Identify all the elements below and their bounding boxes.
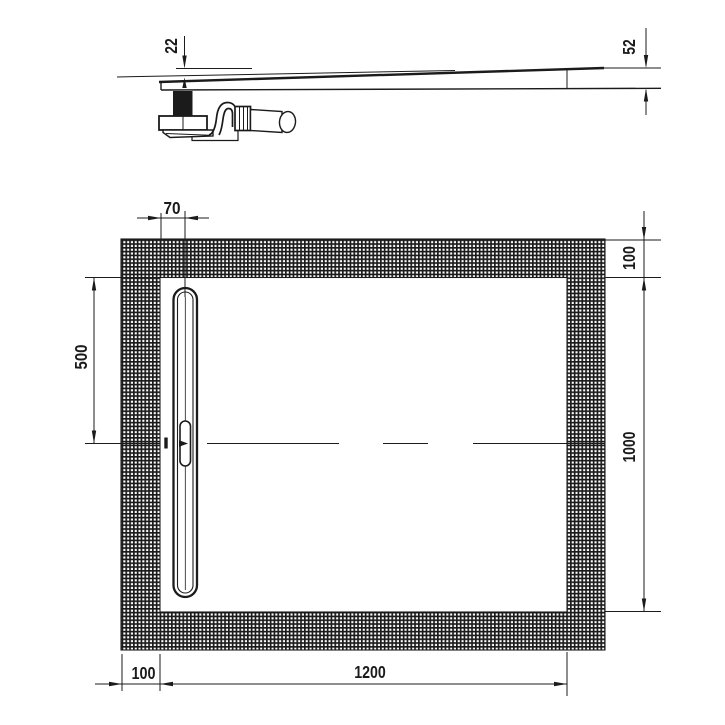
technical-drawing-svg: 22 52 — [0, 0, 725, 725]
centerline-bold-tick — [164, 438, 167, 449]
arrowhead-down — [92, 431, 96, 444]
plan-view: 70 100 1000 500 — [71, 198, 661, 696]
dim-label-22: 22 — [161, 38, 181, 54]
arrowhead-down — [642, 227, 646, 240]
dim-label-1200: 1200 — [354, 662, 386, 682]
trap-pipe-inner-curve — [219, 109, 233, 136]
drain-trap-assembly — [159, 91, 297, 141]
drain-tailpiece — [173, 91, 193, 116]
section-view: 22 52 — [117, 28, 661, 141]
arrowhead-up — [642, 278, 646, 291]
dimension-bottom-row: 100 1200 — [95, 652, 567, 696]
dim-label-100-bottom: 100 — [132, 663, 156, 683]
drawing-canvas: 22 52 — [0, 0, 725, 725]
trap-outlet-pipe — [251, 110, 283, 133]
tray-inner-surface — [160, 278, 567, 613]
linear-drain-channel — [174, 288, 198, 597]
arrowhead-up — [644, 89, 648, 102]
dimension-52: 52 — [619, 28, 648, 115]
arrowhead-left — [185, 216, 198, 220]
dim-label-500: 500 — [71, 344, 91, 369]
trap-nut — [235, 107, 251, 131]
section-bottom-line — [161, 88, 661, 90]
arrowhead-up — [92, 278, 96, 291]
arrowhead-right — [109, 682, 122, 686]
dim-label-52: 52 — [619, 39, 639, 55]
dim-label-70: 70 — [164, 198, 181, 218]
dim-label-100-top: 100 — [619, 246, 639, 270]
arrowhead-left — [160, 682, 173, 686]
dim-label-1000: 1000 — [619, 431, 639, 462]
arrowhead-up — [182, 78, 186, 89]
arrowhead-right — [554, 682, 567, 686]
arrowhead-down — [642, 599, 646, 612]
arrowhead-down — [182, 56, 186, 69]
arrowhead-down — [644, 55, 648, 68]
arrowhead-right — [148, 216, 161, 220]
dimension-right-column: 100 1000 — [605, 211, 661, 612]
